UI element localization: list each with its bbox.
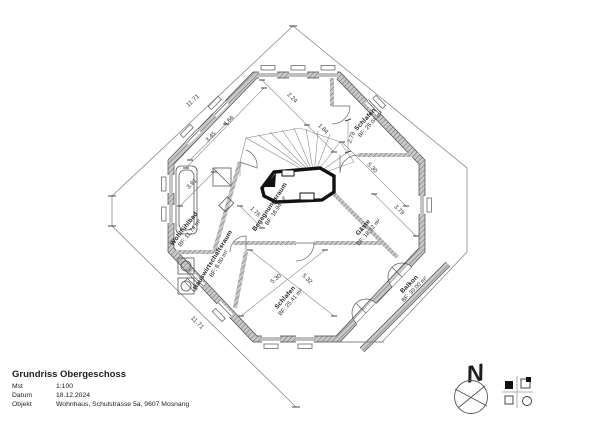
tb-label-datum: Datum: [12, 392, 32, 399]
dim-532: 5.32: [300, 273, 313, 286]
tb-value-datum: 18.12.2024: [56, 392, 90, 399]
drawing-title: Grundriss Obergeschoss: [12, 369, 126, 380]
north-arrow: N: [455, 359, 488, 413]
title-block: Grundriss Obergeschoss Mst 1:100 Datum 1…: [12, 369, 189, 408]
dim-466: 4.66: [223, 115, 236, 128]
window-south-2: [296, 335, 314, 348]
window-west-2: [162, 205, 175, 223]
window-east-1: [418, 196, 431, 214]
dim-224: 2.24: [285, 92, 298, 105]
tb-value-mst: 1:100: [56, 383, 73, 390]
north-label: N: [464, 359, 486, 389]
tb-value-objekt: Wohnhaus, Schulstrasse 5a, 9607 Mosnang: [56, 401, 189, 408]
windows: [162, 66, 432, 349]
window-north-3: [319, 66, 337, 79]
window-south-1: [262, 335, 280, 348]
window-west-1: [162, 175, 175, 193]
dim-1171-top: 11.71: [185, 93, 201, 109]
dim-530-a: 5.30: [365, 162, 378, 175]
legend-filled-square-icon: [505, 381, 513, 389]
tb-label-objekt: Objekt: [12, 401, 32, 408]
window-north-2: [289, 66, 307, 79]
floor-plan: 11.71 11.71: [0, 0, 600, 424]
svg-text:Hauswirtschaftsraum: Hauswirtschaftsraum: [192, 229, 234, 291]
door-arc-schlafen-tr: [332, 106, 350, 124]
drawing-sheet: 11.71 11.71: [0, 0, 600, 424]
window-nw-1: [179, 123, 201, 145]
tb-label-mst: Mst: [12, 383, 23, 390]
dim-278: 2.78: [347, 131, 357, 145]
legend: [502, 376, 533, 408]
window-nw-2: [207, 95, 229, 117]
window-sw-2: [211, 301, 233, 323]
legend-open-circle-icon: [523, 397, 532, 406]
legend-open-square-icon: [505, 396, 513, 404]
door-arc-schlafen-s: [296, 243, 314, 261]
legend-chimney-icon: [521, 377, 531, 388]
dim-184: 1.84: [316, 123, 329, 136]
dim-1171-bottom: 11.71: [189, 315, 205, 331]
window-north-1: [259, 66, 277, 79]
exterior-walls: [168, 72, 425, 342]
